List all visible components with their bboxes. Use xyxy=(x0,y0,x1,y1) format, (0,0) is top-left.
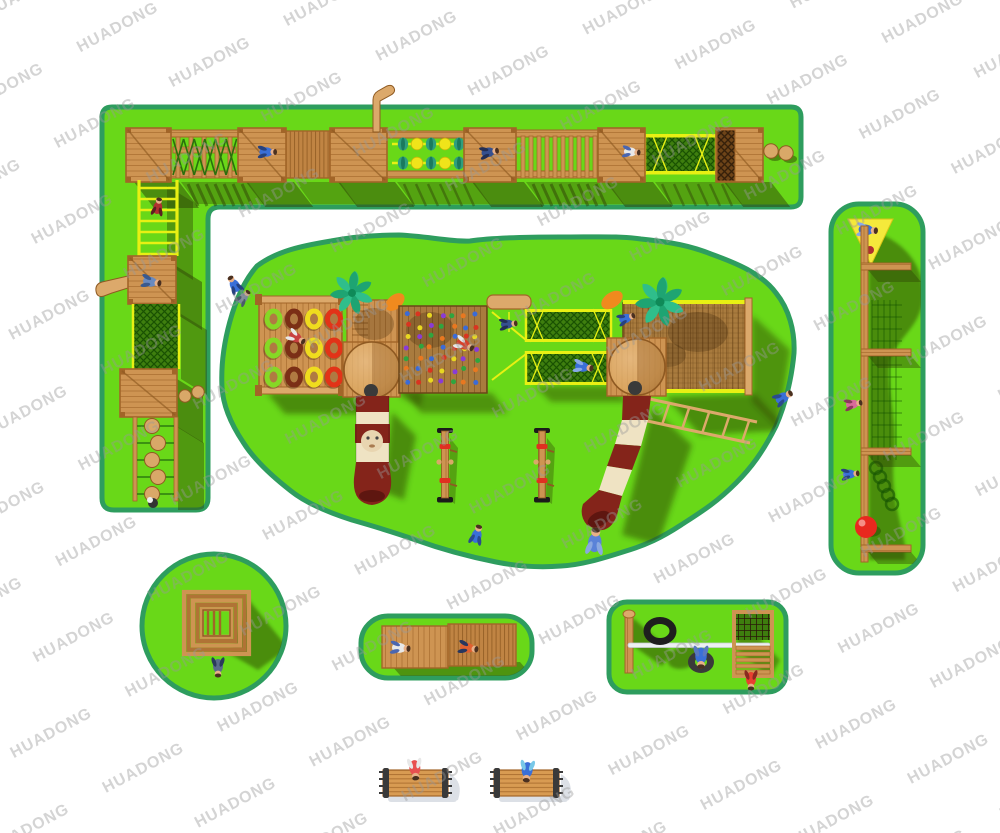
svg-text:HUADONG: HUADONG xyxy=(651,530,738,587)
svg-text:HUADONG: HUADONG xyxy=(995,347,1000,404)
svg-text:HUADONG: HUADONG xyxy=(0,0,69,21)
svg-text:HUADONG: HUADONG xyxy=(835,600,922,657)
svg-text:HUADONG: HUADONG xyxy=(0,574,25,631)
svg-text:HUADONG: HUADONG xyxy=(281,0,368,30)
svg-text:HUADONG: HUADONG xyxy=(0,156,24,213)
svg-text:HUADONG: HUADONG xyxy=(973,443,1000,500)
svg-text:HUADONG: HUADONG xyxy=(764,51,851,108)
svg-text:HUADONG: HUADONG xyxy=(949,121,1000,178)
svg-text:HUADONG: HUADONG xyxy=(813,696,900,753)
svg-text:HUADONG: HUADONG xyxy=(787,0,874,12)
svg-text:HUADONG: HUADONG xyxy=(30,609,117,666)
svg-text:HUADONG: HUADONG xyxy=(373,8,460,65)
svg-text:HUADONG: HUADONG xyxy=(606,722,693,779)
svg-text:HUADONG: HUADONG xyxy=(0,382,71,439)
svg-text:HUADONG: HUADONG xyxy=(580,0,667,38)
svg-text:HUADONG: HUADONG xyxy=(856,86,943,143)
svg-text:HUADONG: HUADONG xyxy=(488,0,575,4)
svg-text:HUADONG: HUADONG xyxy=(53,513,140,570)
svg-text:HUADONG: HUADONG xyxy=(0,670,3,727)
svg-text:HUADONG: HUADONG xyxy=(926,216,1000,273)
svg-text:HUADONG: HUADONG xyxy=(6,287,93,344)
svg-text:HUADONG: HUADONG xyxy=(0,801,72,833)
svg-text:HUADONG: HUADONG xyxy=(583,818,670,833)
svg-text:HUADONG: HUADONG xyxy=(950,539,1000,596)
svg-text:HUADONG: HUADONG xyxy=(971,25,1000,82)
svg-text:HUADONG: HUADONG xyxy=(444,556,531,613)
svg-text:HUADONG: HUADONG xyxy=(74,0,161,56)
svg-text:HUADONG: HUADONG xyxy=(0,478,48,535)
svg-text:HUADONG: HUADONG xyxy=(465,42,552,99)
svg-text:HUADONG: HUADONG xyxy=(284,809,371,833)
svg-text:HUADONG: HUADONG xyxy=(672,16,759,73)
svg-text:HUADONG: HUADONG xyxy=(192,774,279,831)
svg-text:HUADONG: HUADONG xyxy=(882,826,969,833)
svg-text:HUADONG: HUADONG xyxy=(790,792,877,833)
svg-text:HUADONG: HUADONG xyxy=(0,252,1,309)
svg-text:HUADONG: HUADONG xyxy=(100,740,187,797)
svg-text:HUADONG: HUADONG xyxy=(879,0,966,47)
svg-text:HUADONG: HUADONG xyxy=(0,60,46,117)
svg-text:HUADONG: HUADONG xyxy=(8,705,95,762)
svg-text:HUADONG: HUADONG xyxy=(307,713,394,770)
svg-text:HUADONG: HUADONG xyxy=(698,757,785,814)
svg-text:HUADONG: HUADONG xyxy=(166,34,253,91)
svg-text:HUADONG: HUADONG xyxy=(905,731,992,788)
svg-text:HUADONG: HUADONG xyxy=(927,635,1000,692)
svg-text:HUADONG: HUADONG xyxy=(514,687,601,744)
